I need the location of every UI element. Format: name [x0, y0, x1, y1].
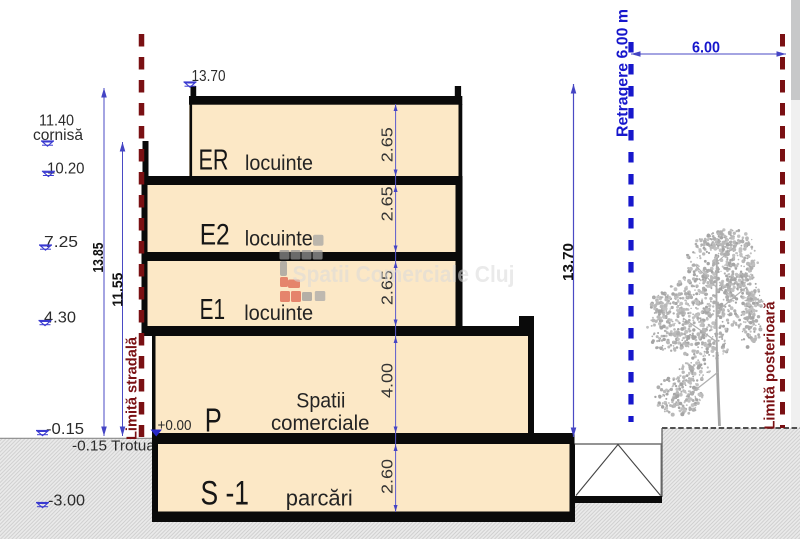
svg-text:comerciale: comerciale: [271, 412, 370, 435]
svg-text:-0.15: -0.15: [46, 421, 84, 438]
svg-text:locuinte: locuinte: [245, 152, 313, 175]
svg-text:S -1: S -1: [201, 474, 250, 512]
svg-text:parcări: parcări: [286, 486, 353, 511]
svg-text:E1: E1: [200, 294, 226, 326]
svg-text:ER: ER: [199, 145, 229, 177]
svg-text:4.30: 4.30: [44, 310, 76, 327]
svg-text:locuinte: locuinte: [245, 228, 313, 251]
svg-text:locuinte: locuinte: [244, 302, 313, 325]
svg-text:2.65: 2.65: [380, 186, 397, 221]
svg-text:13.70: 13.70: [192, 68, 226, 85]
svg-text:13.70: 13.70: [560, 243, 577, 281]
svg-text:11.55: 11.55: [109, 273, 126, 307]
svg-text:7.25: 7.25: [44, 234, 78, 251]
svg-text:-0.15 Trotuar: -0.15 Trotuar: [72, 438, 160, 455]
svg-text:2.60: 2.60: [380, 459, 397, 494]
svg-text:E2: E2: [200, 219, 230, 252]
svg-text:10.20: 10.20: [47, 161, 85, 178]
svg-text:Spatii: Spatii: [296, 390, 345, 413]
svg-text:13.85: 13.85: [90, 243, 107, 273]
svg-text:-3.00: -3.00: [48, 493, 85, 510]
svg-text:Limită posterioară: Limită posterioară: [763, 301, 779, 430]
svg-text:Limită stradală: Limită stradală: [125, 336, 141, 440]
svg-text:2.65: 2.65: [380, 127, 397, 162]
svg-text:Retragere 6.00 m: Retragere 6.00 m: [615, 9, 632, 137]
svg-text:Spatii Comerciale Cluj: Spatii Comerciale Cluj: [293, 261, 515, 287]
svg-text:+0.00: +0.00: [158, 417, 192, 434]
svg-text:4.00: 4.00: [380, 363, 397, 398]
svg-text:6.00: 6.00: [692, 40, 720, 57]
svg-text:cornisă: cornisă: [33, 127, 83, 144]
svg-text:P: P: [205, 401, 222, 438]
